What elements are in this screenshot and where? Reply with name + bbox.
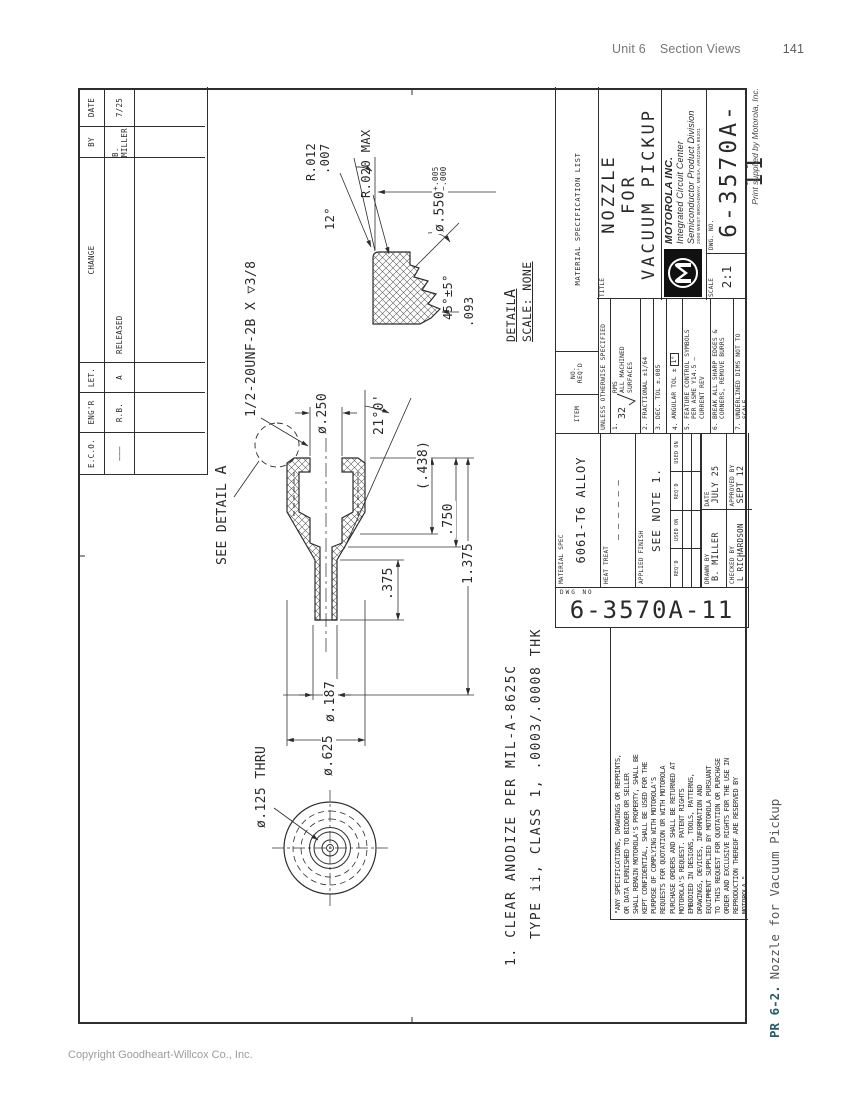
company-division-2: Semiconductor Product Division (686, 110, 697, 244)
date-label: DATE (704, 491, 711, 506)
dim-r020: R.020 MAX (359, 129, 373, 198)
revision-table: E.C.O. ENG'R LET. CHANGE BY DATE ——— R.B… (78, 87, 208, 475)
company-address: 2000 WEST BROADWAY, MESA, ARIZONA 85201 (697, 110, 702, 244)
figure-caption-label: PR 6-2. (767, 985, 782, 1038)
dim-750: .750 (441, 501, 456, 538)
title-label: TITLE (599, 278, 606, 297)
dim-d125: ø.125 THRU (254, 746, 269, 828)
approved-date-value: SEPT 12 (736, 466, 746, 504)
dim-angle12: 12° (323, 207, 337, 230)
tolerance-item-4: 4. ANGULAR TOL ± 1° (667, 299, 683, 433)
copyright-line: Copyright Goodheart-Willcox Co., Inc. (68, 1049, 253, 1061)
used-on-table: REQ'D USED ON REQ'D USED ON (671, 433, 702, 587)
checked-by-value: L RICHARDSON (736, 523, 745, 581)
surface-finish-icon (615, 393, 637, 407)
tolerance-header: UNLESS OTHERWISE SPECIFIED (597, 299, 611, 433)
dim-r012: R.012.007 (304, 143, 332, 181)
dim-taper-angle: 21°0' (372, 394, 387, 435)
dim-groove: .093 (462, 297, 476, 328)
dim-d625: ø.625 (321, 733, 336, 778)
no-reqd-header: NO. REQ'D (556, 351, 598, 394)
detail-a-title: DETAILA (501, 289, 519, 342)
checked-by-cell: CHECKED BY L RICHARDSON (727, 510, 752, 588)
drawn-by-value: B. MILLER (711, 532, 721, 581)
section-label: Section Views (660, 42, 741, 56)
applied-finish-label: APPLIED FINISH (638, 531, 645, 584)
tolerance-item-6: 6. BREAK ALL SHARP EDGES & CORNERS, REMO… (711, 299, 734, 433)
tolerance-item-7: 7. UNDERLINED DIMS NOT TO SCALE (734, 299, 755, 433)
item-header: ITEM (556, 394, 598, 433)
dim-1375: 1.375 (461, 541, 476, 586)
angular-tol-box: 1° (670, 353, 679, 367)
company-cell: MOTOROLA INC. Integrated Circuit Center … (661, 88, 707, 300)
dwg-number-value: 6-3570A-11 (716, 88, 768, 253)
material-spec-label: MATERIAL SPEC (558, 534, 565, 584)
main-section-view (234, 390, 474, 746)
figure-caption-text: Nozzle for Vacuum Pickup (767, 799, 782, 980)
print-credit: Print supplied by Motorola, Inc. (750, 88, 760, 205)
applied-finish-row: APPLIED FINISH SEE NOTE 1. (636, 433, 671, 587)
dim-see-detail: SEE DETAIL A (212, 465, 230, 565)
tolerance-item-5: 5. FEATURE CONTROL SYMBOLS PER ASME Y14.… (683, 299, 711, 433)
dwg-number-strip: DWG NO 6-3570A-11 (555, 587, 749, 628)
title-cell: TITLE NOZZLE FOR VACUUM PICKUP (597, 88, 662, 300)
page-number: 141 (783, 42, 804, 56)
figure-caption: PR 6-2.Nozzle for Vacuum Pickup (767, 799, 782, 1038)
rev-cell-by: B. MILLER (105, 126, 135, 157)
drawn-by-cell: DRAWN BY B. MILLER (702, 510, 726, 588)
drawn-row: DRAWN BY B. MILLER DATE JULY 25 (702, 433, 727, 587)
date-value: JULY 25 (711, 466, 721, 504)
page-header: Unit 6Section Views141 (612, 42, 804, 56)
rev-cell-engr: R.B. (105, 392, 135, 432)
d125-leader (274, 808, 318, 840)
title-line-3: VACUUM PICKUP (639, 88, 659, 300)
rev-cell-change: RELEASED (105, 157, 135, 362)
material-block: MATERIAL SPEC 6061-T6 ALLOY HEAT TREAT –… (555, 433, 749, 588)
rev-header-date: DATE (78, 89, 105, 126)
rev-header-engr: ENG'R (78, 392, 105, 432)
dim-chamfer: 45°±5° (441, 274, 455, 320)
used-on-header: USED ON (671, 510, 683, 549)
dim-d187: ø.187 (323, 679, 338, 724)
title-line-2: FOR (619, 88, 639, 300)
legal-notice-text: "ANY SPECIFICATIONS, DRAWINGS OR REPRINT… (611, 627, 753, 919)
dim-thread-callout: 1/2-20UNF-2B X ▽3/8 (244, 261, 259, 417)
note-line-2: TYPE ii, CLASS 1, .0003/.0008 THK (529, 628, 544, 939)
textbook-page: { "page": { "header_unit": "Unit 6", "he… (0, 0, 849, 1112)
drawn-by-label: DRAWN BY (704, 554, 711, 585)
surface-finish-value: 32 (611, 407, 640, 419)
rev-header-change: CHANGE (78, 157, 105, 362)
dwg-no-strip-number: 6-3570A-11 (556, 596, 748, 624)
dwg-number-label: DWG. NO. (708, 220, 715, 251)
dimension-lines (283, 407, 474, 746)
material-spec-list-title: MATERIAL SPECIFICATION LIST (556, 87, 598, 351)
dim-d550: ø.550+.005−.000 (432, 164, 448, 234)
material-spec-list-strip: ITEM NO. REQ'D MATERIAL SPECIFICATION LI… (555, 87, 599, 434)
dim-d250: ø.250 (315, 391, 330, 436)
motorola-logo (664, 249, 702, 297)
scale-label: SCALE (708, 278, 715, 297)
rev-cell-eco: ——— (105, 432, 135, 474)
scale-dwg-row: SCALE 2:1 DWG. NO. 6-3570A-11 (706, 88, 747, 300)
scale-cell: SCALE 2:1 (706, 253, 747, 300)
material-spec-row: MATERIAL SPEC 6061-T6 ALLOY (556, 433, 601, 587)
legal-notice-cell: "ANY SPECIFICATIONS, DRAWINGS OR REPRINT… (610, 627, 748, 920)
reqd-header: REQ'D (671, 472, 683, 511)
rotated-drawing: E.C.O. ENG'R LET. CHANGE BY DATE ——— R.B… (78, 88, 808, 1024)
detail-a-scale: SCALE: NONE (520, 261, 534, 342)
rev-cell-date: 7/25 (105, 89, 135, 126)
dim-438: (.438) (416, 439, 431, 492)
used-on-header: USED ON (671, 433, 683, 471)
approved-by-cell: APPROVED BY SEPT 12 (727, 433, 752, 510)
approved-by-label: APPROVED BY (729, 465, 736, 507)
detail-a-circle (255, 423, 299, 467)
heat-treat-label: HEAT TREAT (603, 546, 610, 584)
company-name: MOTOROLA INC. (663, 110, 675, 244)
dwg-no-strip-label: DWG NO (560, 589, 594, 596)
rev-cell-let: A (105, 362, 135, 392)
unit-label: Unit 6 (612, 42, 646, 56)
company-division-1: Integrated Circuit Center (675, 110, 686, 244)
section-upper-wall (287, 458, 320, 620)
heat-treat-row: HEAT TREAT – – – – – – (601, 433, 636, 587)
rev-header-let: LET. (78, 362, 105, 392)
date-cell: DATE JULY 25 (702, 433, 726, 510)
end-view (272, 790, 388, 906)
thread-leader (261, 418, 308, 446)
scale-value: 2:1 (719, 254, 734, 300)
dwg-number-cell: DWG. NO. 6-3570A-11 (706, 88, 747, 253)
tolerance-item-3: 3. DEC. TOL ±.005 (654, 299, 667, 433)
rev-header-by: BY (78, 126, 105, 157)
tolerance-item-2: 2. FRACTIONAL ±1/64 (641, 299, 654, 433)
tolerance-block: UNLESS OTHERWISE SPECIFIED 1. 32 RMS ALL… (597, 298, 747, 434)
checked-by-label: CHECKED BY (729, 546, 736, 584)
reqd-header: REQ'D (671, 549, 683, 588)
detail-piece (373, 252, 440, 324)
dim-375: .375 (381, 567, 396, 600)
note-line-1: 1. CLEAR ANODIZE PER MIL-A-8625C (504, 664, 519, 966)
see-detail-leader (234, 461, 259, 497)
title-line-1: NOZZLE (599, 88, 619, 300)
motorola-batwing-icon (664, 249, 702, 297)
rev-header-eco: E.C.O. (78, 432, 105, 474)
tolerance-item-1: 1. 32 RMS ALL MACHINED SURFACES (611, 299, 641, 433)
checked-row: CHECKED BY L RICHARDSON APPROVED BY SEPT… (727, 433, 752, 587)
